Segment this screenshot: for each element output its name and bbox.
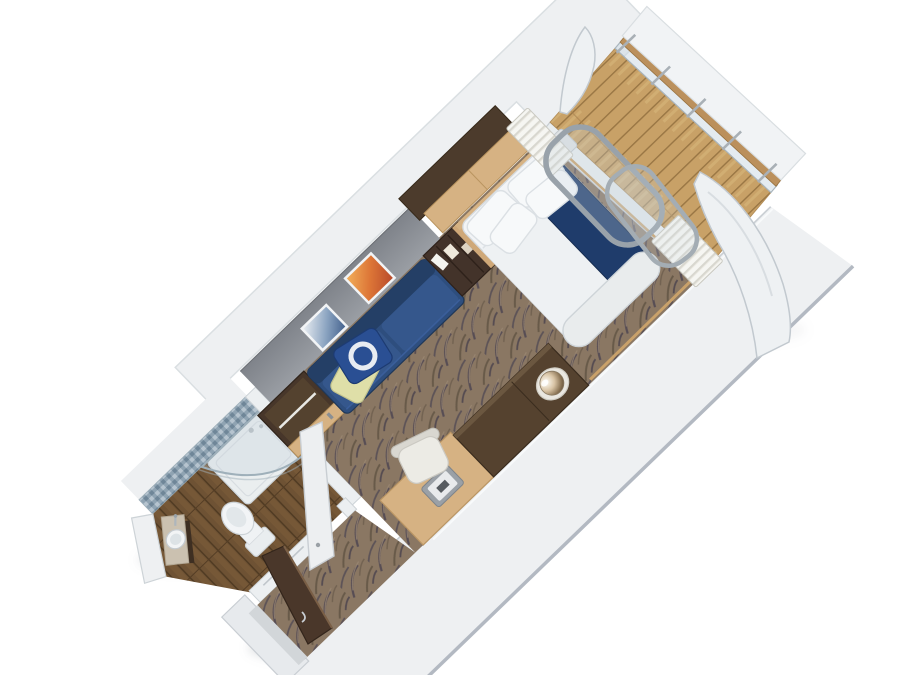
stateroom-render-stage [0, 0, 900, 675]
bathroom-door-handle [316, 543, 320, 547]
stateroom-3d-floorplan [0, 0, 900, 675]
